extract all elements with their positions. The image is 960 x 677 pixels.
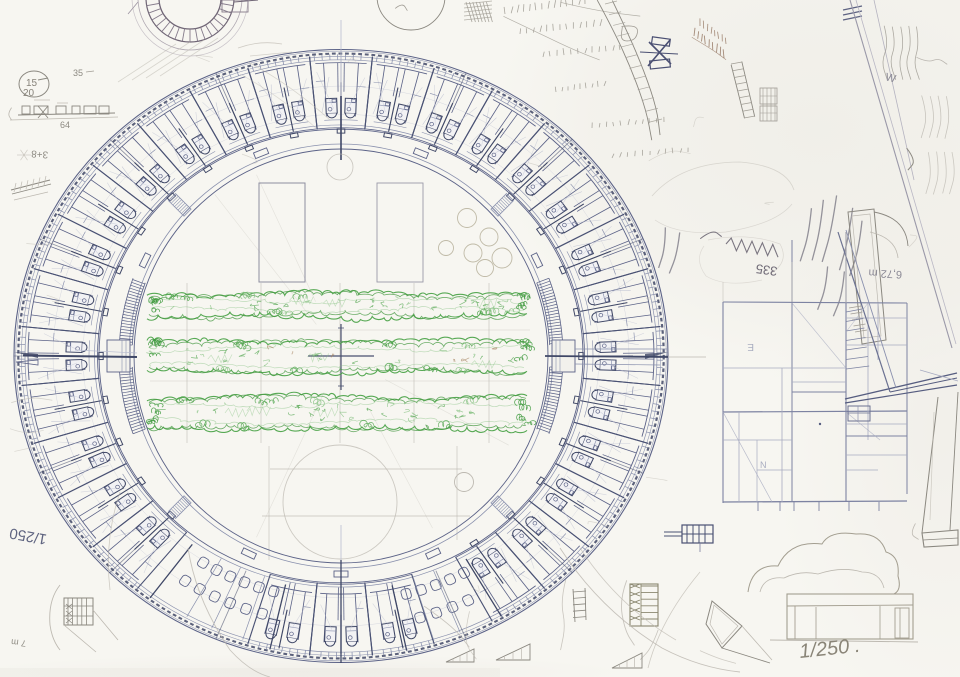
svg-text:N: N: [760, 460, 767, 470]
svg-text:35: 35: [73, 68, 83, 78]
svg-text:20: 20: [23, 88, 35, 99]
svg-text:3+8: 3+8: [30, 148, 48, 160]
svg-text:335: 335: [755, 261, 779, 279]
svg-text:64: 64: [60, 120, 70, 130]
svg-text:E: E: [747, 341, 754, 352]
svg-text:7 m: 7 m: [11, 637, 27, 649]
svg-text:6,72 m: 6,72 m: [868, 266, 902, 280]
